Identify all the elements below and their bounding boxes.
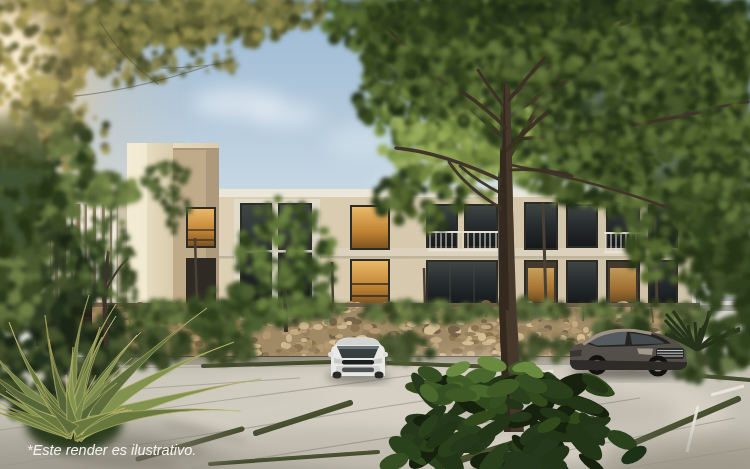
svg-text:*Este render es ilustrativo.: *Este render es ilustrativo. [27,442,196,458]
